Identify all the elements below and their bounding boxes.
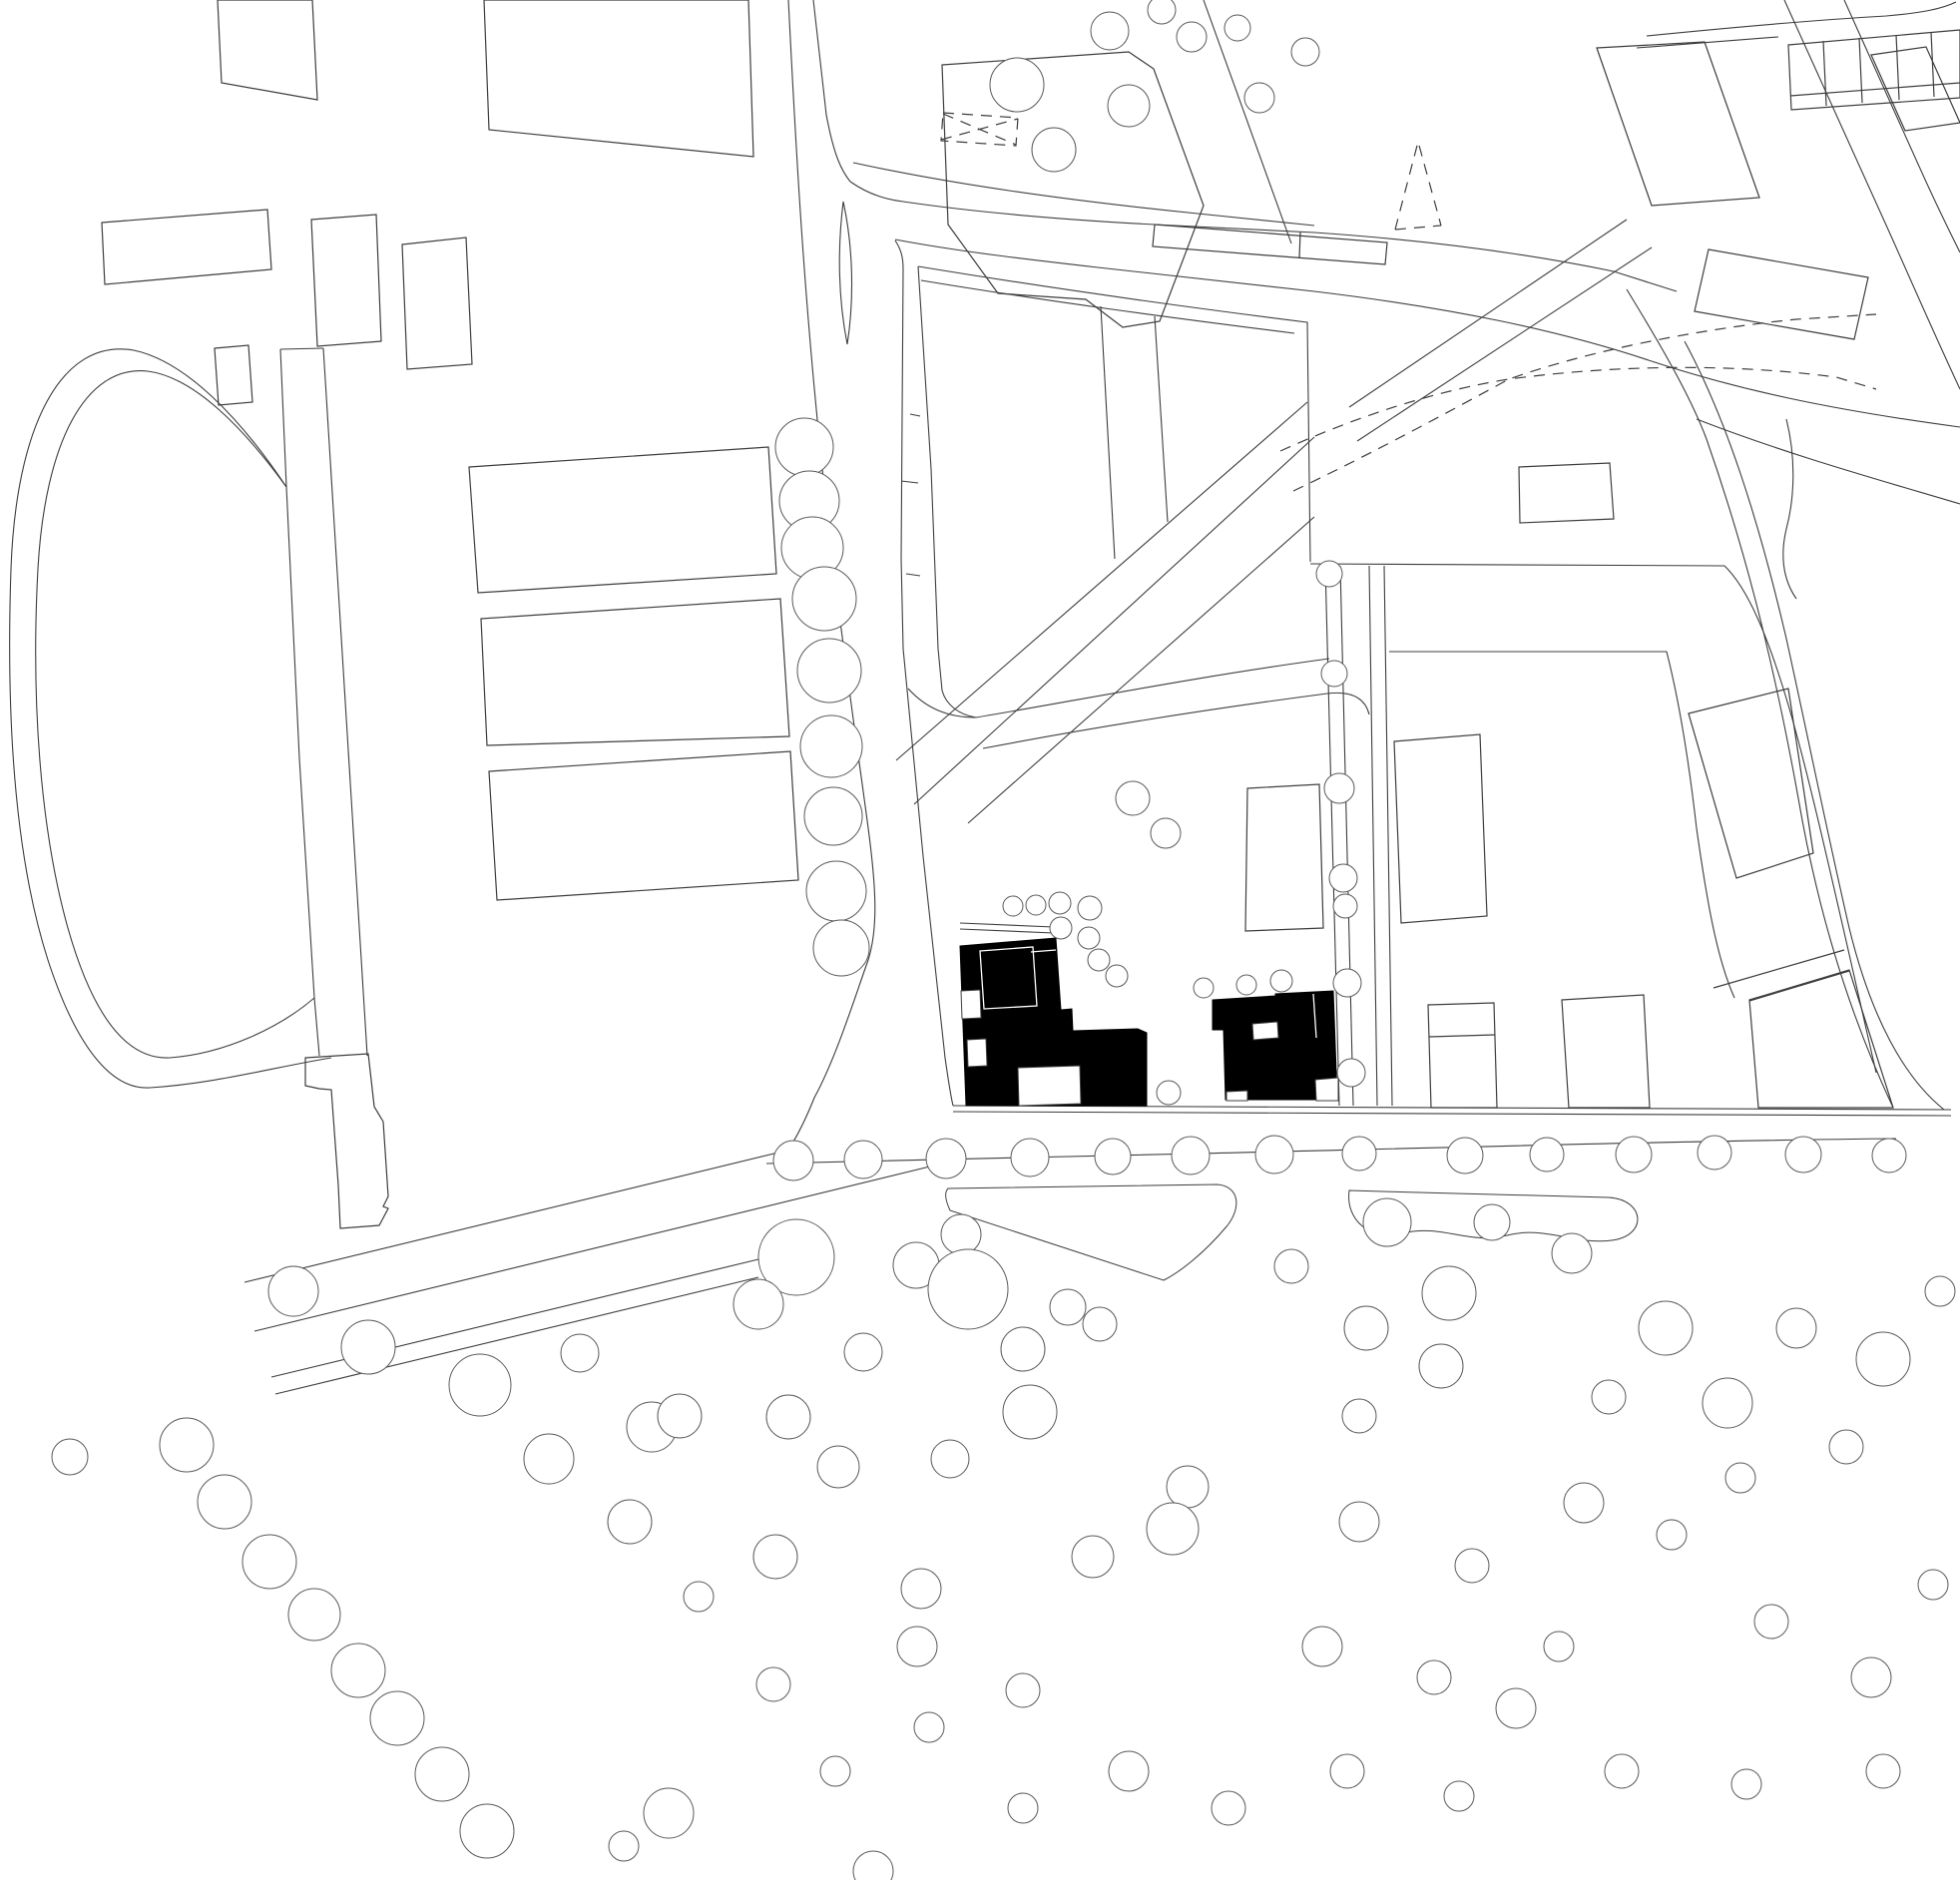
tree: [268, 1266, 318, 1316]
tree: [756, 1667, 790, 1701]
tree: [792, 567, 856, 631]
tree: [813, 920, 869, 976]
building-2-notch-c: [1315, 1078, 1338, 1101]
parcel-inner-vertical-1: [1101, 306, 1115, 559]
parcel-tick-1: [910, 414, 920, 416]
tree: [753, 1535, 797, 1579]
tree: [1109, 1751, 1149, 1791]
parcel-tick-3: [906, 574, 920, 576]
tree: [775, 418, 833, 476]
layer-trees: [52, 0, 1955, 1880]
tree: [820, 1756, 850, 1786]
tree: [1148, 0, 1176, 24]
stall-divider-2: [1859, 38, 1862, 103]
tree: [1785, 1137, 1821, 1173]
junction-ne-corner: [908, 689, 976, 717]
building-a: [218, 0, 317, 100]
stall-divider-3: [1896, 35, 1899, 100]
tree: [1167, 1466, 1209, 1508]
tree: [1776, 1308, 1816, 1348]
tree: [1091, 12, 1129, 50]
tree: [370, 1691, 424, 1745]
tree: [1078, 896, 1102, 920]
tree: [1925, 1276, 1955, 1306]
east-street-north: [976, 659, 1329, 717]
stall-strip-outer: [1788, 30, 1960, 110]
building-k: [1428, 1003, 1497, 1108]
tree: [800, 715, 862, 777]
building-2-notch-a: [1252, 1022, 1278, 1040]
tree: [1333, 894, 1357, 918]
tree: [806, 861, 866, 921]
right-parcel-inner: [1389, 652, 1734, 998]
road-main-east-upper: [813, 0, 850, 182]
tree: [1455, 1549, 1489, 1583]
tree: [1006, 1673, 1040, 1707]
tree: [1212, 1791, 1245, 1825]
building-north-complex: [942, 52, 1204, 327]
sw-road-1: [245, 1151, 786, 1282]
tree: [1011, 1139, 1049, 1176]
layer-track: [10, 348, 367, 1088]
wavy-edge: [1783, 419, 1796, 599]
tree: [844, 1333, 882, 1371]
tree: [1592, 1380, 1626, 1414]
tree: [844, 1141, 882, 1178]
tree: [797, 639, 861, 703]
north-boundary-1: [1647, 2, 1956, 36]
tree: [243, 1535, 296, 1589]
tree: [1225, 15, 1250, 41]
traffic-island: [839, 202, 851, 344]
tree: [1544, 1632, 1574, 1661]
tree: [1108, 85, 1150, 127]
tree: [1001, 1327, 1045, 1371]
tree: [1474, 1204, 1510, 1240]
building-k-divider: [1429, 1035, 1495, 1037]
building-1-court: [1018, 1066, 1081, 1106]
tree: [609, 1831, 639, 1861]
dashed-triangle-base: [1395, 226, 1441, 230]
tree: [198, 1475, 251, 1529]
tree: [1866, 1754, 1900, 1788]
stall-divider-1: [1823, 41, 1826, 106]
street-north-2: [953, 1112, 1951, 1116]
tree: [1291, 38, 1319, 66]
tree: [1419, 1344, 1463, 1388]
building-o: [1689, 689, 1813, 878]
tree: [928, 1249, 1008, 1329]
tree: [1321, 661, 1347, 687]
rect-e: [402, 237, 472, 369]
building-1-notch-b: [967, 1039, 987, 1067]
tree: [1157, 1081, 1181, 1105]
tree: [853, 1851, 893, 1880]
tree: [734, 1279, 783, 1329]
tree: [1339, 1502, 1379, 1542]
tree: [449, 1354, 511, 1416]
tree: [1172, 1137, 1210, 1175]
tree: [1342, 1137, 1376, 1171]
tree: [160, 1418, 214, 1472]
tree: [1078, 927, 1100, 949]
track-right-straight: [323, 348, 367, 1056]
layer-roads: [245, 0, 1960, 1394]
tree: [766, 1395, 810, 1439]
building-slab: [1695, 249, 1868, 339]
tree: [1151, 818, 1181, 848]
tree: [684, 1582, 714, 1612]
tree: [1342, 1399, 1376, 1433]
tree: [1274, 1249, 1308, 1283]
stall-inner-line: [1790, 83, 1960, 96]
tree: [1872, 1139, 1906, 1173]
sse-road-east: [1685, 341, 1944, 1110]
building-2-notch-b: [1226, 1091, 1247, 1101]
tree: [1270, 970, 1292, 992]
tree: [773, 1141, 813, 1180]
tree: [1177, 22, 1207, 52]
north-boundary-2: [1637, 37, 1778, 48]
building-n: [1749, 970, 1893, 1108]
tree: [1316, 561, 1342, 587]
rect-f: [215, 345, 252, 405]
tree: [1049, 892, 1071, 914]
tree: [1363, 1198, 1411, 1246]
parcel-west-edge: [918, 266, 976, 717]
tree: [1725, 1463, 1755, 1493]
tree: [1194, 978, 1214, 998]
tree: [658, 1394, 702, 1438]
track-top-stub: [280, 348, 323, 349]
tree: [1851, 1657, 1891, 1697]
tree: [901, 1569, 941, 1609]
site-plan: [0, 0, 1960, 1880]
tree: [1333, 969, 1361, 997]
tree: [1106, 965, 1128, 987]
tree: [804, 787, 862, 845]
tree: [1918, 1570, 1948, 1600]
parcel-inner-vertical-2: [1155, 316, 1168, 522]
track-outer: [10, 349, 331, 1088]
track-inner: [36, 371, 314, 1059]
parcel-tick-2: [901, 481, 918, 483]
parcel-north-sidewalk-1: [918, 266, 1310, 562]
tree: [1236, 975, 1256, 995]
tree: [1552, 1233, 1592, 1273]
tree: [524, 1434, 574, 1484]
tree: [1754, 1605, 1788, 1639]
tree: [1050, 1289, 1086, 1325]
building-j: [1394, 734, 1487, 923]
building-1-notch-a: [961, 990, 981, 1019]
tree: [331, 1644, 385, 1697]
tree: [1422, 1266, 1476, 1320]
tree: [644, 1788, 694, 1838]
tree: [1324, 773, 1354, 803]
tree: [1003, 1385, 1057, 1439]
tree: [1564, 1483, 1604, 1523]
tree: [1008, 1793, 1038, 1823]
tree: [1829, 1430, 1863, 1464]
sports-field-2: [481, 599, 789, 745]
tree: [1050, 917, 1072, 939]
tree: [931, 1440, 969, 1478]
tree: [288, 1589, 340, 1641]
dashed-rect-x2: [941, 119, 1018, 140]
sse-road-west: [1627, 289, 1893, 1108]
tree: [608, 1500, 652, 1544]
tree: [1337, 1059, 1365, 1087]
rect-c: [102, 210, 271, 284]
tree: [1083, 1307, 1117, 1341]
east-street-south: [983, 693, 1369, 748]
tree: [1530, 1138, 1564, 1172]
tree: [1147, 1503, 1199, 1555]
tree: [926, 1139, 966, 1178]
tree: [1605, 1754, 1639, 1788]
road-east-lower: [895, 240, 953, 1106]
tree: [1244, 83, 1274, 113]
tree: [1657, 1520, 1687, 1550]
tree: [341, 1320, 395, 1374]
tree: [1003, 896, 1023, 916]
tree: [990, 58, 1044, 112]
tree: [1698, 1136, 1731, 1170]
tree: [1496, 1688, 1536, 1728]
dashed-alignment-1: [1280, 367, 1876, 451]
tree: [1330, 1754, 1364, 1788]
tree: [1447, 1138, 1483, 1174]
tree: [1731, 1769, 1761, 1799]
building-s-courtyard: [1245, 784, 1323, 931]
tree: [1032, 128, 1076, 172]
tree: [1255, 1136, 1293, 1174]
tree: [1417, 1660, 1451, 1694]
tree: [914, 1712, 944, 1742]
sports-field-1: [469, 447, 776, 593]
tree: [897, 1627, 937, 1666]
tree: [1026, 895, 1046, 915]
site-plan-svg: [0, 0, 1960, 1880]
building-b: [484, 0, 753, 157]
building-h: [1597, 42, 1759, 206]
tree: [1703, 1378, 1752, 1428]
tree: [1444, 1781, 1474, 1811]
tree: [1072, 1536, 1114, 1578]
tree: [1095, 1139, 1131, 1175]
tree: [941, 1214, 981, 1254]
r2-north-sidewalk: [853, 163, 1314, 226]
corridor-line-5: [1357, 247, 1652, 441]
building-i: [1519, 463, 1614, 523]
tree: [1639, 1301, 1693, 1355]
rect-d: [311, 215, 381, 346]
building-n-path-2: [1749, 971, 1849, 1001]
tree: [817, 1446, 859, 1488]
sw-road-2: [254, 1165, 938, 1331]
corridor-line-3: [968, 517, 1314, 823]
tree: [460, 1804, 514, 1858]
tree: [1329, 864, 1357, 892]
tree: [1344, 1306, 1388, 1350]
tree: [1616, 1137, 1652, 1173]
building-g: [305, 1054, 388, 1228]
right-parcel-west-2: [1384, 566, 1392, 1106]
tree: [52, 1439, 88, 1475]
building-m: [1562, 995, 1650, 1108]
steep-road-east: [1844, 0, 1960, 252]
track-left-straight: [280, 349, 319, 1056]
layer-highlight-buildings: [960, 938, 1337, 1106]
tree: [1116, 781, 1150, 815]
right-parcel-west-1: [1369, 566, 1377, 1106]
tree: [1856, 1332, 1910, 1386]
tree: [1302, 1627, 1342, 1666]
corridor-line-1: [896, 402, 1307, 760]
parcel-north-sidewalk-2: [921, 280, 1294, 333]
tree: [1088, 949, 1110, 971]
tree-path-east: [1340, 566, 1353, 1106]
tree: [415, 1747, 469, 1801]
dashed-triangle: [1395, 142, 1441, 230]
sports-field-3: [489, 751, 798, 900]
black1-north-path-2: [960, 929, 1054, 933]
corridor-line-2: [914, 437, 1314, 804]
corridor-line-4: [1349, 220, 1627, 407]
black1-north-path-1: [960, 923, 1054, 927]
building-n-path-1: [1714, 950, 1844, 988]
right-parcel-outer: [1310, 564, 1876, 1073]
tree: [561, 1334, 599, 1372]
